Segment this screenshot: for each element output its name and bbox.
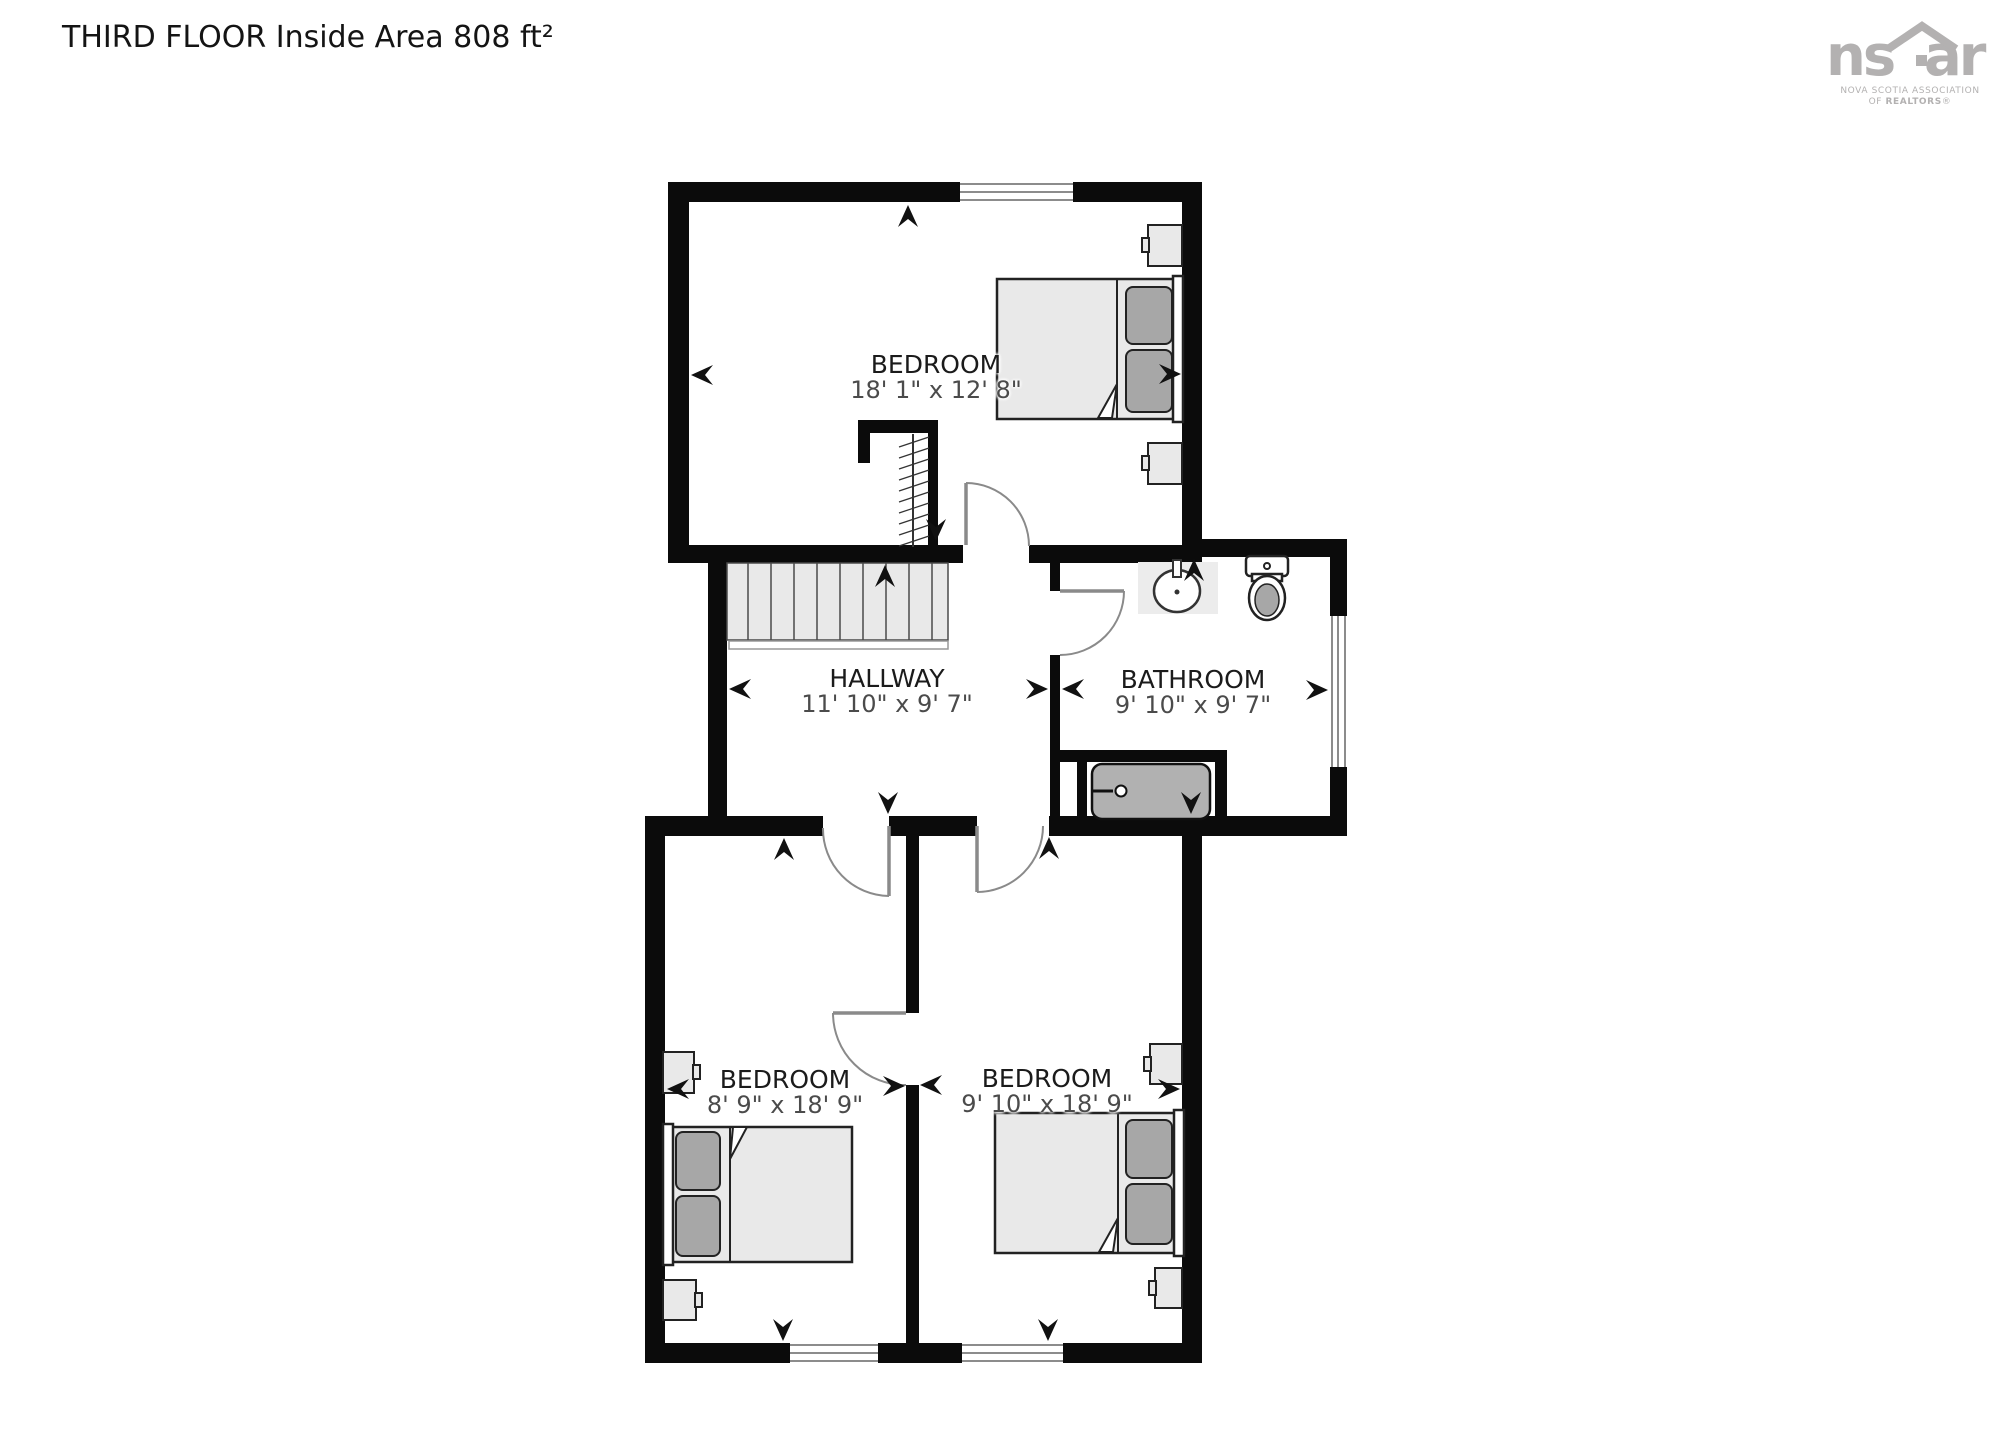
nightstand: [663, 1280, 702, 1320]
toilet-icon: [1246, 556, 1288, 620]
room-name: HALLWAY: [801, 666, 973, 691]
wall-segment: [1182, 182, 1202, 563]
door-bedroom-right: [977, 826, 1043, 892]
room-label-bedroom-right: BEDROOM 9' 10" x 18' 9": [961, 1066, 1133, 1117]
wall-segment: [1330, 539, 1347, 616]
room-name: BEDROOM: [961, 1066, 1133, 1091]
wall-segment: [1060, 750, 1227, 762]
wall-segment: [1050, 557, 1060, 591]
wall-segment: [906, 1085, 919, 1363]
nightstand: [1144, 1044, 1182, 1084]
floor-plan-drawing: [0, 0, 2000, 1451]
room-dimensions: 11' 10" x 9' 7": [801, 691, 973, 717]
wall-segment: [878, 1343, 962, 1363]
room-dimensions: 9' 10" x 18' 9": [961, 1091, 1133, 1117]
room-label-hallway: HALLWAY 11' 10" x 9' 7": [801, 666, 973, 717]
dimension-arrow-right: [1026, 679, 1048, 699]
floorplan-page: THIRD FLOOR Inside Area 808 ft² ns ar NO…: [0, 0, 2000, 1451]
room-dimensions: 9' 10" x 9' 7": [1115, 692, 1271, 718]
dimension-arrow-down: [878, 792, 898, 814]
dimension-arrow-down: [1038, 1319, 1058, 1341]
wall-segment: [906, 816, 919, 1013]
bed-bottom-right-bedroom: [995, 1110, 1184, 1256]
wall-segment: [1215, 750, 1227, 836]
window-bedroom-right: [962, 1343, 1063, 1363]
door-top-bedroom: [966, 483, 1029, 546]
stair-railing: [899, 434, 929, 547]
room-name: BATHROOM: [1115, 667, 1271, 692]
room-dimensions: 8' 9" x 18' 9": [707, 1092, 863, 1118]
room-label-bathroom: BATHROOM 9' 10" x 9' 7": [1115, 667, 1271, 718]
bed-bottom-left-bedroom: [663, 1124, 852, 1265]
dimension-arrow-right: [883, 1076, 905, 1096]
dimension-arrow-left: [729, 679, 751, 699]
dimension-arrow-down: [773, 1319, 793, 1341]
dimension-arrow-left: [1062, 679, 1084, 699]
dimension-arrow-right: [1306, 680, 1328, 700]
window-top-bedroom: [960, 182, 1073, 202]
door-bathroom: [1060, 591, 1124, 655]
room-label-bedroom-top: BEDROOM 18' 1" x 12' 8": [850, 352, 1022, 403]
wall-segment: [668, 182, 689, 563]
nightstand: [1149, 1268, 1182, 1308]
wall-segment: [1050, 655, 1060, 836]
stair-wall: [858, 420, 870, 463]
wall-segment: [708, 557, 727, 836]
wall-segment: [1077, 762, 1087, 836]
nightstand: [1142, 225, 1182, 266]
wall-segment: [1182, 816, 1202, 1363]
room-dimensions: 18' 1" x 12' 8": [850, 377, 1022, 403]
wall-segment: [645, 1343, 790, 1363]
stairs: [727, 563, 948, 649]
window-bedroom-left: [790, 1343, 878, 1363]
wall-segment: [668, 182, 960, 202]
wall-segment: [1202, 539, 1347, 557]
room-name: BEDROOM: [707, 1067, 863, 1092]
dimension-arrow-left: [920, 1075, 942, 1095]
door-bedroom-left: [823, 826, 889, 896]
room-name: BEDROOM: [850, 352, 1022, 377]
room-label-bedroom-left: BEDROOM 8' 9" x 18' 9": [707, 1067, 863, 1118]
wall-segment: [889, 816, 977, 836]
dimension-arrow-up: [774, 838, 794, 860]
wall-segment: [1063, 1343, 1202, 1363]
nightstand: [1142, 443, 1182, 484]
window-bathroom: [1330, 616, 1347, 767]
bed-top-bedroom: [997, 276, 1183, 422]
dimension-arrow-left: [691, 365, 713, 385]
sink-icon: [1138, 560, 1218, 614]
dimension-arrow-up: [898, 205, 918, 227]
wall-segment: [645, 816, 823, 836]
